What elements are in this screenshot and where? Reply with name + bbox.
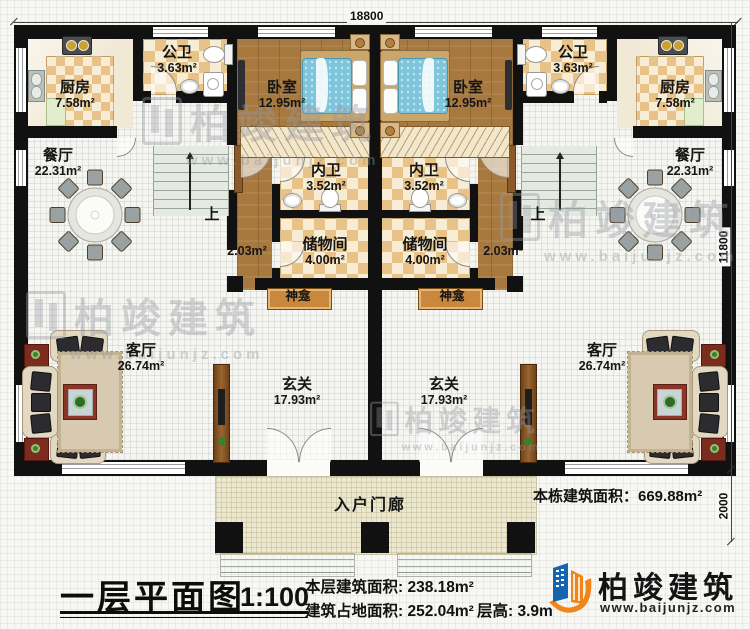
room-label-kitchen-left: 厨房 7.58m²	[55, 80, 95, 110]
room-label-foyer-left: 玄关 17.93m²	[274, 377, 321, 407]
room-label-shrine-left: 神龛	[285, 290, 310, 304]
toilet-icon	[525, 46, 547, 63]
room-label-bedroom-right: 卧室 12.95m²	[445, 80, 492, 110]
kitchen-bath-wall	[607, 39, 617, 101]
storage-left-wall-a	[470, 218, 478, 242]
stairs-up-label-left: 上	[204, 206, 219, 224]
sofa-cushion	[699, 393, 719, 412]
porch-pier	[507, 522, 535, 553]
porch-steps	[397, 553, 532, 577]
room-label-landing-left: 2.03m²	[227, 245, 267, 259]
room-label-inner-bath-left: 内卫 3.52m²	[306, 163, 346, 193]
watermark-text: 柏竣建筑	[74, 286, 262, 344]
window-side-kitchen	[724, 48, 734, 112]
sink-icon	[448, 193, 467, 208]
title-underline-thin	[60, 617, 308, 618]
sofa-icon	[692, 366, 728, 438]
room-label-landing-right: 2.03m²	[483, 245, 523, 259]
dimension-porch-label: 2000	[716, 490, 730, 523]
end-table-icon	[701, 438, 726, 461]
company-logo-icon	[541, 558, 595, 622]
company-website: www.baijunjz.com	[600, 600, 736, 615]
building-total-area: 本栋建筑面积：669.88m²	[533, 485, 702, 506]
stove-icon	[658, 36, 688, 55]
entry-door-opening	[420, 460, 483, 476]
footprint-stat: 建筑占地面积: 252.04m²	[305, 599, 474, 621]
sofa-cushion	[698, 413, 720, 434]
toilet-tank	[517, 44, 526, 65]
floor-area-stat: 本层建筑面积: 238.18m²	[305, 575, 474, 597]
room-label-shrine-right: 神龛	[439, 290, 464, 304]
stairs-up-label-right: 上	[530, 206, 545, 224]
room-label-public-bath-left: 公卫 3.63m²	[157, 45, 197, 75]
floor-plan-canvas: 18800 11800 2000 柏竣建筑 www.baijunjz.com 柏…	[0, 0, 750, 629]
watermark-website: www.baijunjz.com	[70, 346, 263, 363]
watermark: 柏竣建筑 www.baijunjz.com	[500, 188, 737, 265]
bed-pillow	[383, 60, 398, 86]
porch-pier	[215, 522, 243, 553]
stove-burner	[673, 40, 684, 51]
stairs-arrow-head	[556, 152, 564, 159]
end-table-icon	[701, 344, 726, 367]
drawing-scale: 1:100	[240, 582, 309, 613]
window-top-2	[415, 27, 492, 37]
room-label-living-left: 客厅 26.74m²	[118, 343, 165, 373]
plant-icon	[665, 397, 675, 407]
watermark-text: 柏竣建筑	[548, 188, 736, 246]
window-top-1	[542, 27, 597, 37]
room-label-storage-left: 储物间 4.00m²	[302, 237, 347, 267]
room-label-living-right: 客厅 26.74m²	[579, 343, 626, 373]
window-side-dining	[724, 150, 734, 186]
bedroom-tv-icon	[505, 60, 512, 110]
room-label-bedroom-left: 卧室 12.95m²	[259, 80, 306, 110]
watermark-logo-icon	[370, 402, 399, 437]
bath-bottom-wall-a	[599, 91, 607, 103]
nightstand-icon	[380, 122, 400, 138]
room-label-inner-bath-right: 内卫 3.52m²	[404, 163, 444, 193]
wall-pier	[507, 276, 523, 292]
room-label-dining-right: 餐厅 22.31m²	[667, 148, 714, 178]
bed-pillow	[383, 88, 398, 114]
room-label-foyer-right: 玄关 17.93m²	[421, 377, 468, 407]
stove-burner	[661, 40, 672, 51]
dimension-line-right	[731, 22, 732, 542]
sofa-cushion	[698, 371, 720, 392]
kitchen-sink-icon	[705, 70, 722, 102]
watermark-website: www.baijunjz.com	[186, 152, 379, 169]
nightstand-icon	[380, 34, 400, 50]
watermark-website: www.baijunjz.com	[544, 248, 737, 265]
room-label-kitchen-right: 厨房 7.58m²	[655, 80, 695, 110]
room-label-public-bath-right: 公卫 3.63m²	[553, 45, 593, 75]
porch-pier	[361, 522, 389, 553]
coffee-table-icon	[653, 384, 687, 420]
room-label-dining-left: 餐厅 22.31m²	[35, 148, 82, 178]
watermark-website: www.baijunjz.com	[402, 441, 541, 453]
dimension-width-label: 18800	[347, 9, 386, 23]
bed-sheet-fold	[422, 58, 434, 112]
watermark-logo-icon	[26, 291, 66, 339]
washing-machine-icon	[526, 72, 547, 97]
sink-icon	[551, 79, 570, 94]
watermark-logo-icon	[142, 97, 182, 145]
room-label-porch: 入户门廊	[334, 497, 406, 515]
kitchen-bottom-wall	[633, 126, 736, 138]
room-label-storage-right: 储物间 4.00m²	[402, 237, 447, 267]
